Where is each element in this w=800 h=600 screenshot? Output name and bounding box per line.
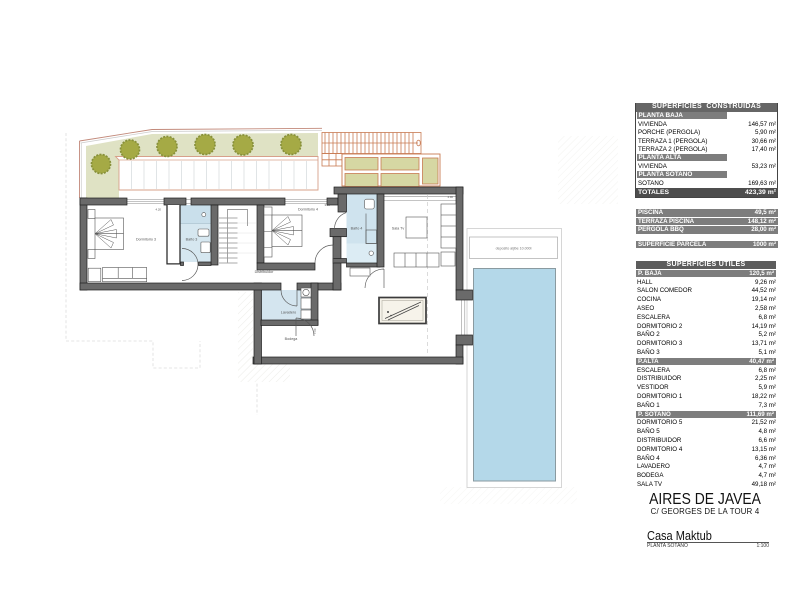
- svg-text:Lavadero: Lavadero: [281, 311, 296, 315]
- svg-text:7.00: 7.00: [313, 328, 317, 334]
- svg-text:Dormitorio 3: Dormitorio 3: [136, 237, 156, 241]
- svg-text:3.19: 3.19: [325, 203, 331, 207]
- svg-text:Bodega: Bodega: [285, 337, 299, 341]
- svg-text:Sala Tv: Sala Tv: [392, 227, 405, 231]
- svg-text:4.46: 4.46: [448, 195, 454, 199]
- svg-text:Baño 4: Baño 4: [351, 227, 363, 231]
- svg-text:4.20: 4.20: [156, 208, 162, 212]
- svg-text:Baño 3: Baño 3: [186, 237, 198, 241]
- svg-text:deposito aljibe 10.000l: deposito aljibe 10.000l: [496, 247, 532, 251]
- svg-text:Distribuidor: Distribuidor: [255, 270, 274, 274]
- svg-text:Dormitorio 4: Dormitorio 4: [298, 208, 318, 212]
